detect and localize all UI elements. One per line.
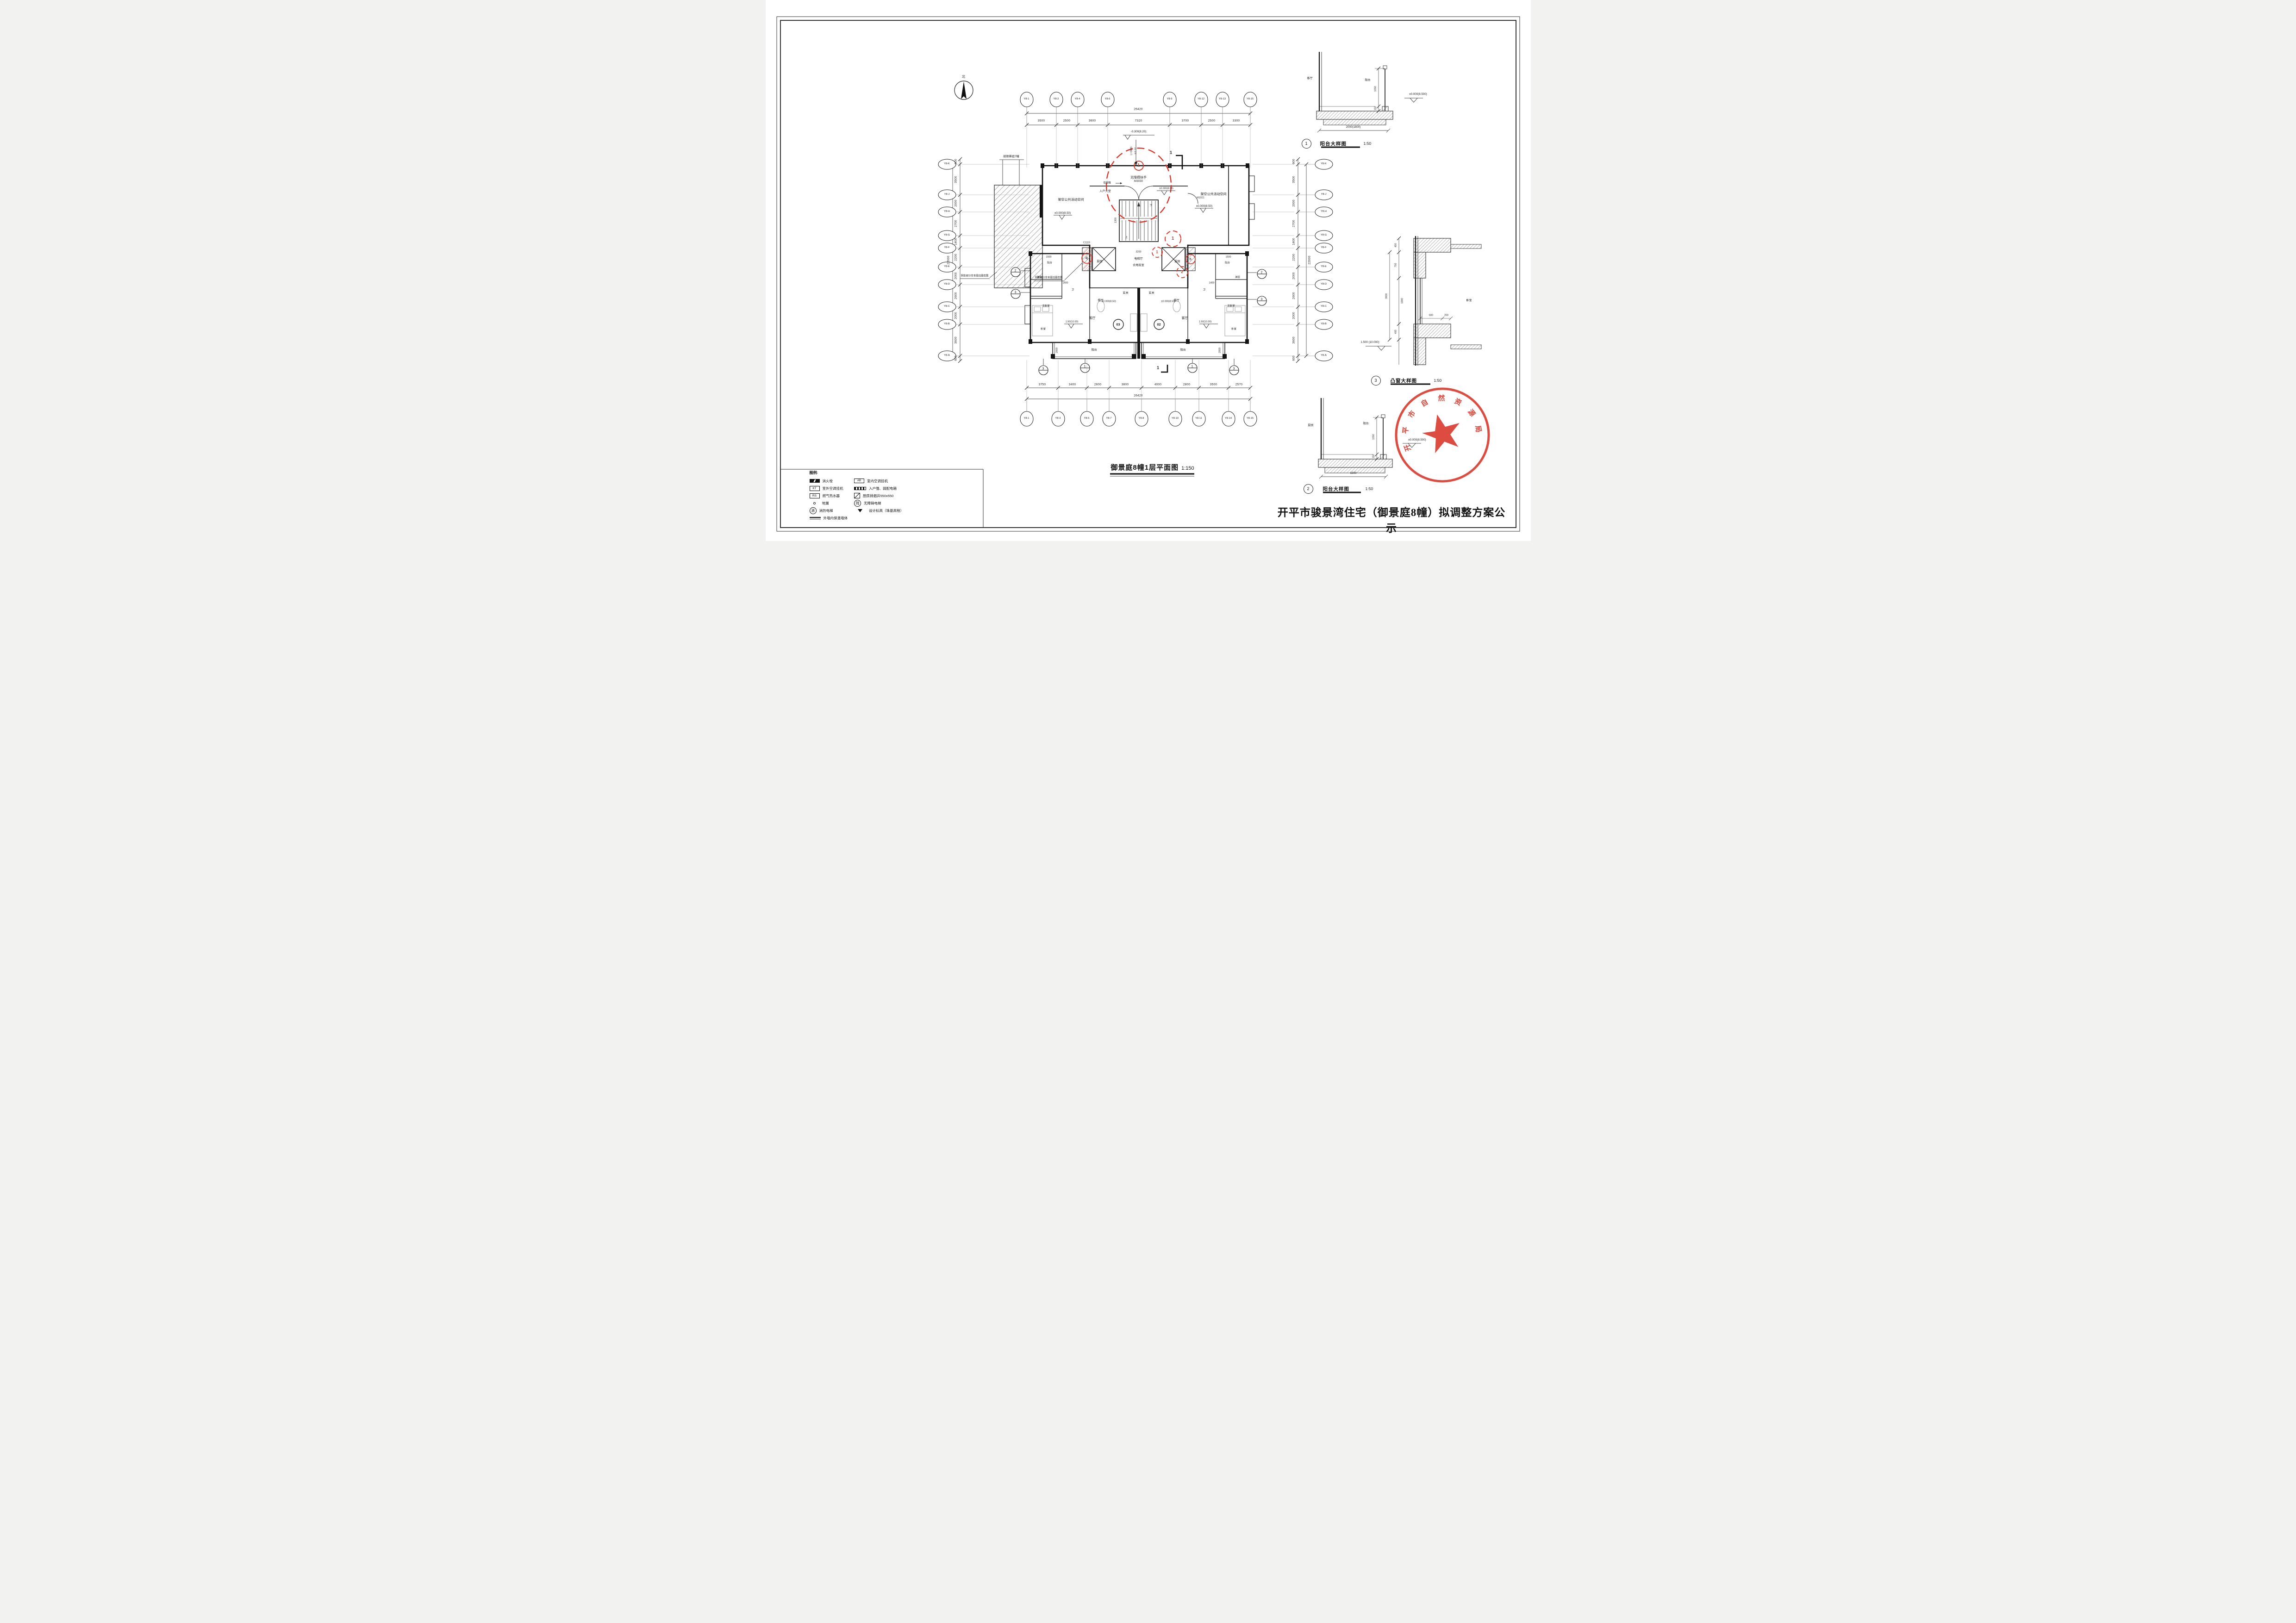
annotation: 2000 <box>955 312 958 319</box>
annotation: 3600 <box>955 336 958 343</box>
annotation: ±0.000(8.50) <box>1102 300 1116 303</box>
legend-symbol-shaft-icon <box>854 493 860 498</box>
annotation: Y8-1 <box>1024 417 1029 420</box>
legend-symbol-circ-icon: 残 <box>854 500 861 507</box>
detail-1-number: 1 <box>1302 139 1311 149</box>
annotation: 厨房 <box>1174 261 1180 263</box>
legend-item: 外墙内保温墙体 <box>810 514 848 522</box>
annotation: 阳台 <box>1180 349 1185 352</box>
annotation: 然 <box>1438 395 1445 402</box>
legend-item: RS燃气热水器 <box>810 492 848 499</box>
annotation: 下 <box>1150 205 1152 207</box>
annotation: 1 <box>1172 236 1174 241</box>
annotation: Y8-E <box>1321 266 1326 268</box>
annotation: 局 <box>1474 425 1482 433</box>
annotation: Y8-13 <box>1219 98 1226 101</box>
annotation: 3600 <box>1089 120 1096 123</box>
annotation: 1800 <box>1401 298 1404 304</box>
annotation: 卧室 <box>1041 328 1046 330</box>
annotation: 2000 <box>1219 348 1221 353</box>
sheet-border <box>777 17 1520 531</box>
annotation: 2200 <box>955 254 958 261</box>
annotation: 600 <box>1292 355 1296 361</box>
legend-symbol-circ-icon: 消 <box>810 507 817 514</box>
annotation: ±0.000(8.50) <box>1054 212 1071 215</box>
annotation: 信报箱 <box>1103 182 1111 184</box>
annotation: 1500 <box>1350 472 1357 475</box>
legend-item: 消火栓 <box>810 477 848 485</box>
legend-label: 入户强、弱配电箱 <box>869 486 897 491</box>
official-stamp <box>1396 389 1489 481</box>
annotation: Y8-10 <box>1172 417 1179 420</box>
detail-2-scale: 1:50 <box>1366 486 1373 491</box>
annotation: 阳台 <box>1363 423 1368 425</box>
legend-symbol-tri-icon <box>858 509 862 512</box>
plan-title-underline <box>1110 474 1194 476</box>
plan-title: 御景庭8幢1层平面图1:150 <box>1092 462 1213 472</box>
annotation: 3 <box>1233 367 1235 371</box>
legend-item: 残无障碍电梯 <box>854 499 904 507</box>
annotation: 3500 <box>1038 120 1045 123</box>
detail-2-name: 阳台大样图 <box>1323 485 1350 492</box>
annotation: 卧室 <box>1466 299 1472 302</box>
annotation: Y8-J <box>944 193 950 196</box>
annotation: 1 <box>1157 366 1159 370</box>
legend-label: 消防电梯 <box>819 508 833 513</box>
annotation: 合用前室 <box>1133 264 1144 267</box>
annotation: 电 <box>1085 257 1088 260</box>
detail-3-name: 凸窗大样图 <box>1391 377 1417 384</box>
annotation: 3200 <box>1136 251 1142 253</box>
legend-symbol-acbox-icon: AB <box>854 479 864 483</box>
detail-2-number: 2 <box>1304 484 1313 494</box>
annotation: 3750 <box>1039 384 1046 387</box>
annotation: Y8-G <box>1321 234 1327 237</box>
legend-symbol-ktbox-icon: KT <box>810 486 820 491</box>
annotation: 玄关 <box>1148 292 1154 295</box>
legend-column-2: AB室内空调挂机入户强、弱配电箱厨房排烟井550x550残无障碍电梯设计标高（珠… <box>854 477 904 522</box>
annotation: 1.50(10.00) <box>1199 321 1212 323</box>
annotation: M3030 <box>1134 180 1143 183</box>
annotation: 主卧室 <box>1042 305 1049 307</box>
notice-title: 开平市骏景湾住宅（御景庭8幢）拟调整方案公示 <box>1273 504 1511 535</box>
annotation: 2600 <box>1094 384 1101 387</box>
annotation: 22000 <box>947 255 950 264</box>
annotation: 2 <box>1261 271 1263 274</box>
annotation: -0.300(8.20) <box>1131 131 1147 133</box>
annotation: C1115 <box>1083 242 1090 244</box>
annotation: 2700 <box>1292 220 1296 227</box>
annotation: 电梯厅 <box>1134 258 1143 261</box>
legend-header: 图例: <box>810 470 976 475</box>
detail-1-name: 阳台大样图 <box>1320 140 1347 147</box>
annotation: 厨房 <box>1097 261 1102 263</box>
mailbox-arrowhead <box>1120 182 1122 184</box>
annotation: Y8-3 <box>1055 417 1061 420</box>
annotation: Y8-8 <box>1139 417 1144 420</box>
annotation: L=3600 <box>1130 147 1133 155</box>
annotation: Y8-15 <box>1247 417 1254 420</box>
legend-item: 设计标高（珠基高程） <box>854 507 904 514</box>
annotation: 600 <box>955 355 958 361</box>
annotation: Y8-1 <box>1024 98 1029 101</box>
annotation: 2600 <box>1292 292 1296 299</box>
detail-3-linework <box>1366 236 1481 384</box>
annotation: 1300 <box>1115 218 1117 223</box>
annotation: 2600 <box>955 292 958 299</box>
detail-3-number: 3 <box>1371 376 1381 386</box>
annotation: 餐厅 <box>1173 299 1179 302</box>
annotation: 3500 <box>1292 176 1296 183</box>
annotation: 600 <box>1429 314 1433 317</box>
annotation: 1 <box>1192 365 1193 368</box>
annotation: 2000(1800) <box>1346 126 1361 129</box>
annotation: 1400 <box>1209 282 1215 284</box>
annotation: ±0.000(8.500) <box>1409 93 1427 96</box>
annotation: 2500 <box>1063 120 1070 123</box>
annotation: 上 <box>1125 236 1128 239</box>
annotation: 2000 <box>1292 312 1296 319</box>
plan-title-text: 御景庭8幢1层平面图 <box>1111 464 1179 472</box>
annotation: 3 <box>1015 291 1017 294</box>
annotation: 入户大堂 <box>1099 190 1111 193</box>
annotation: 2000 <box>1292 199 1296 206</box>
annotation: 1500 <box>1046 256 1052 258</box>
legend-item: 厨房排烟井550x550 <box>854 492 904 499</box>
annotation: 2700 <box>955 220 958 227</box>
annotation: Y8-B <box>944 323 949 326</box>
legend-label: 室内空调挂机 <box>867 479 888 484</box>
annotation: Y8-A <box>1321 354 1326 357</box>
annotation: 2000 <box>955 272 958 279</box>
annotation: 3500 <box>955 176 958 183</box>
annotation: 架空公共活动空间 <box>1058 199 1084 202</box>
annotation: 客厅 <box>1089 317 1096 320</box>
annotation: 02 <box>1157 323 1160 326</box>
annotation: 2 <box>1015 269 1017 273</box>
annotation: 2200 <box>1292 254 1296 261</box>
annotation: Y8-K <box>1321 163 1326 166</box>
annotation: Y8-E <box>944 266 949 268</box>
annotation: Y8-D <box>1321 283 1327 286</box>
legend-symbol-distbox-icon <box>854 487 866 490</box>
annotation: ±0.000(8.50) <box>1159 187 1173 190</box>
plan-linework <box>766 0 1531 541</box>
annotation: Y8-5 <box>1084 417 1090 420</box>
annotation: 阳台 <box>1047 262 1052 264</box>
stair-arrow <box>1137 202 1140 206</box>
annotation: Y8-C <box>944 305 950 308</box>
annotation: 卫 <box>1072 289 1074 291</box>
legend-item: 地漏 <box>810 499 848 507</box>
legend-label: 地漏 <box>822 501 829 506</box>
legend-label: 消火栓 <box>823 479 833 484</box>
annotation: 3000 <box>1385 293 1388 299</box>
annotation: Y8-H <box>1321 211 1327 213</box>
annotation: ±0.000(8.50) <box>1196 205 1212 208</box>
annotation: 无障碍扶手 <box>1130 176 1147 180</box>
annotation: Y8-G <box>944 234 950 237</box>
annotation: 600 <box>1292 159 1296 164</box>
legend-item: KT室外空调挂机 <box>810 485 848 492</box>
annotation: 卫 <box>1203 289 1205 291</box>
annotation: 客厅 <box>1182 317 1188 320</box>
annotation: Y8-F <box>1321 247 1326 249</box>
legend-label: 设计标高（珠基高程） <box>869 508 904 513</box>
annotation: i=1:12 <box>1135 148 1137 155</box>
annotation: 2000 <box>1056 348 1058 353</box>
annotation: 卧室 <box>1231 328 1236 330</box>
legend-symbol-hydrant-icon <box>810 479 820 483</box>
legend-item: 消消防电梯 <box>810 507 848 514</box>
legend-label: 室外空调挂机 <box>823 486 843 491</box>
annotation: 150 <box>1373 454 1375 459</box>
annotation: 阳台 <box>1091 349 1097 352</box>
annotation: 1 <box>1084 365 1086 368</box>
party-wall <box>1137 288 1140 359</box>
annotation: 北 <box>962 75 965 79</box>
annotation: Y8-C <box>1321 305 1327 308</box>
annotation: 2570 <box>1235 384 1242 387</box>
annotation: 26420 <box>1134 108 1142 112</box>
annotation: 平 <box>1403 427 1410 435</box>
plan-title-scale: 1:150 <box>1181 466 1194 471</box>
legend-item: AB室内空调挂机 <box>854 477 904 485</box>
annotation: 3800 <box>1122 384 1129 387</box>
legend-symbol-rsbox-icon: RS <box>810 493 820 498</box>
annotation: 450 <box>1395 243 1397 248</box>
annotation: Y8-D <box>944 283 950 286</box>
annotation: 1500 <box>1226 256 1231 258</box>
annotation: Y8-F <box>944 247 949 249</box>
annotation: 3300 <box>1233 120 1240 123</box>
annotation: 1050 <box>1374 86 1377 92</box>
annotation: 厨房 <box>1308 424 1313 427</box>
annotation: 3400 <box>1069 384 1076 387</box>
annotation: 1400 <box>1292 238 1296 245</box>
legend-symbol-wall2-icon <box>810 517 821 519</box>
legend: 图例: 消火栓KT室外空调挂机RS燃气热水器地漏消消防电梯外墙内保温墙体 AB室… <box>810 470 976 522</box>
annotation: Y8-4 <box>1075 98 1080 101</box>
annotation: 1050 <box>1373 434 1375 440</box>
annotation: 玄关 <box>1123 292 1128 295</box>
annotation: ±0.000(8.50) <box>1161 300 1175 303</box>
annotation: Y8-A <box>944 354 949 357</box>
annotation: 600 <box>955 159 958 164</box>
annotation: 1400 <box>1063 282 1068 284</box>
annotation: 架空公共活动空间 <box>1201 193 1227 196</box>
legend-symbol-drain-icon <box>813 502 816 504</box>
annotation: Y8-B <box>1321 323 1326 326</box>
annotation: Y8-9 <box>1167 98 1173 101</box>
annotation: Y8-7 <box>1106 417 1112 420</box>
annotation: 1 <box>1137 163 1140 168</box>
annotation: 03 <box>1116 323 1120 326</box>
detail-3-scale: 1:50 <box>1434 378 1442 383</box>
legend-label: 外墙内保温墙体 <box>824 516 848 521</box>
legend-label: 无障碍电梯 <box>864 501 881 506</box>
annotation: Y8-H <box>944 211 950 213</box>
annotation: 阴影部分非本图出图范围 <box>961 275 988 277</box>
annotation: 客厅 <box>1307 77 1312 80</box>
annotation: 3700 <box>1182 120 1189 123</box>
annotation: Y8-11 <box>1195 417 1202 420</box>
annotation: 2000 <box>1292 272 1296 279</box>
annotation: Y8-15 <box>1247 98 1254 101</box>
annotation: 1 <box>1156 250 1158 254</box>
legend-column-1: 消火栓KT室外空调挂机RS燃气热水器地漏消消防电梯外墙内保温墙体 <box>810 477 848 522</box>
annotation: Y8-6 <box>1105 98 1111 101</box>
annotation: 淋浴 <box>1037 276 1042 279</box>
annotation: Y8-2 <box>1054 98 1059 101</box>
annotation: 4000 <box>1154 384 1161 387</box>
annotation: Y8-K <box>944 163 949 166</box>
annotation: Y8-12 <box>1198 98 1204 101</box>
detail-1-scale: 1:50 <box>1364 141 1372 146</box>
annotation: 150 <box>1374 106 1377 111</box>
legend-item: 入户强、弱配电箱 <box>854 485 904 492</box>
legend-label: 厨房排烟井550x550 <box>863 493 893 498</box>
annotation: 750 <box>1395 263 1397 267</box>
annotation: 1.500 (10.000) <box>1360 341 1379 344</box>
annotation: 1 <box>1170 151 1172 155</box>
annotation: 主卧室 <box>1227 305 1235 307</box>
annotation: 1400 <box>955 238 958 245</box>
annotation: Y8-J <box>1321 193 1327 196</box>
annotation: 7320 <box>1135 120 1142 123</box>
annotation: 2800 <box>1183 384 1190 387</box>
annotation: 3600 <box>1292 336 1296 343</box>
annotation: 阳台 <box>1365 79 1370 82</box>
annotation: 淋浴 <box>1235 276 1240 279</box>
drawing-sheet: 北接御景庭7幢-0.300(8.20)1L=3600i=1:121无障碍扶手架空… <box>766 0 1531 541</box>
legend-label: 燃气热水器 <box>823 493 840 498</box>
annotation: 接御景庭7幢 <box>1003 155 1019 158</box>
annotation: 2500 <box>1208 120 1215 123</box>
annotation: 450 <box>1395 330 1397 334</box>
north-arrow-icon <box>955 81 973 99</box>
annotation: 3 <box>1042 367 1044 371</box>
detail-1-linework <box>1316 52 1423 147</box>
annotation: Y8-14 <box>1225 417 1232 420</box>
annotation: 2000 <box>955 199 958 206</box>
annotation: 1.50(10.00) <box>1066 321 1079 323</box>
annotation: 水 <box>1189 258 1192 261</box>
annotation: ±0.000(8.500) <box>1408 439 1426 442</box>
annotation: 2 <box>1181 270 1183 274</box>
annotation: 3 <box>1261 298 1263 301</box>
annotation: 餐厅 <box>1098 299 1103 302</box>
annotation: 3500 <box>1210 384 1217 387</box>
annotation: 26420 <box>1134 395 1142 398</box>
annotation: 200 <box>1444 314 1448 317</box>
annotation: 阳台 <box>1225 262 1230 264</box>
annotation: M1021 <box>1197 197 1204 199</box>
annotation: 22000 <box>1308 255 1311 264</box>
